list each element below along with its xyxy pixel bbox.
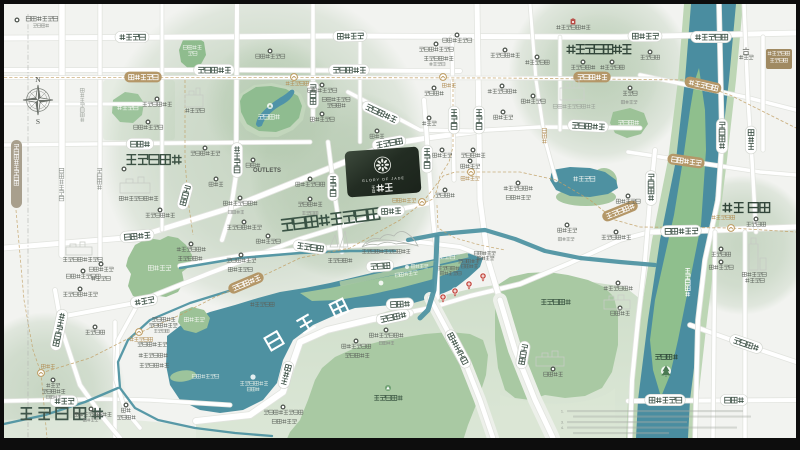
svg-text:3.: 3. — [561, 421, 564, 425]
svg-text:4.: 4. — [561, 426, 564, 430]
svg-text:1.: 1. — [561, 410, 564, 414]
svg-text:S: S — [36, 117, 40, 126]
svg-text:OUTLETS: OUTLETS — [253, 168, 281, 174]
svg-text:N: N — [35, 75, 41, 84]
